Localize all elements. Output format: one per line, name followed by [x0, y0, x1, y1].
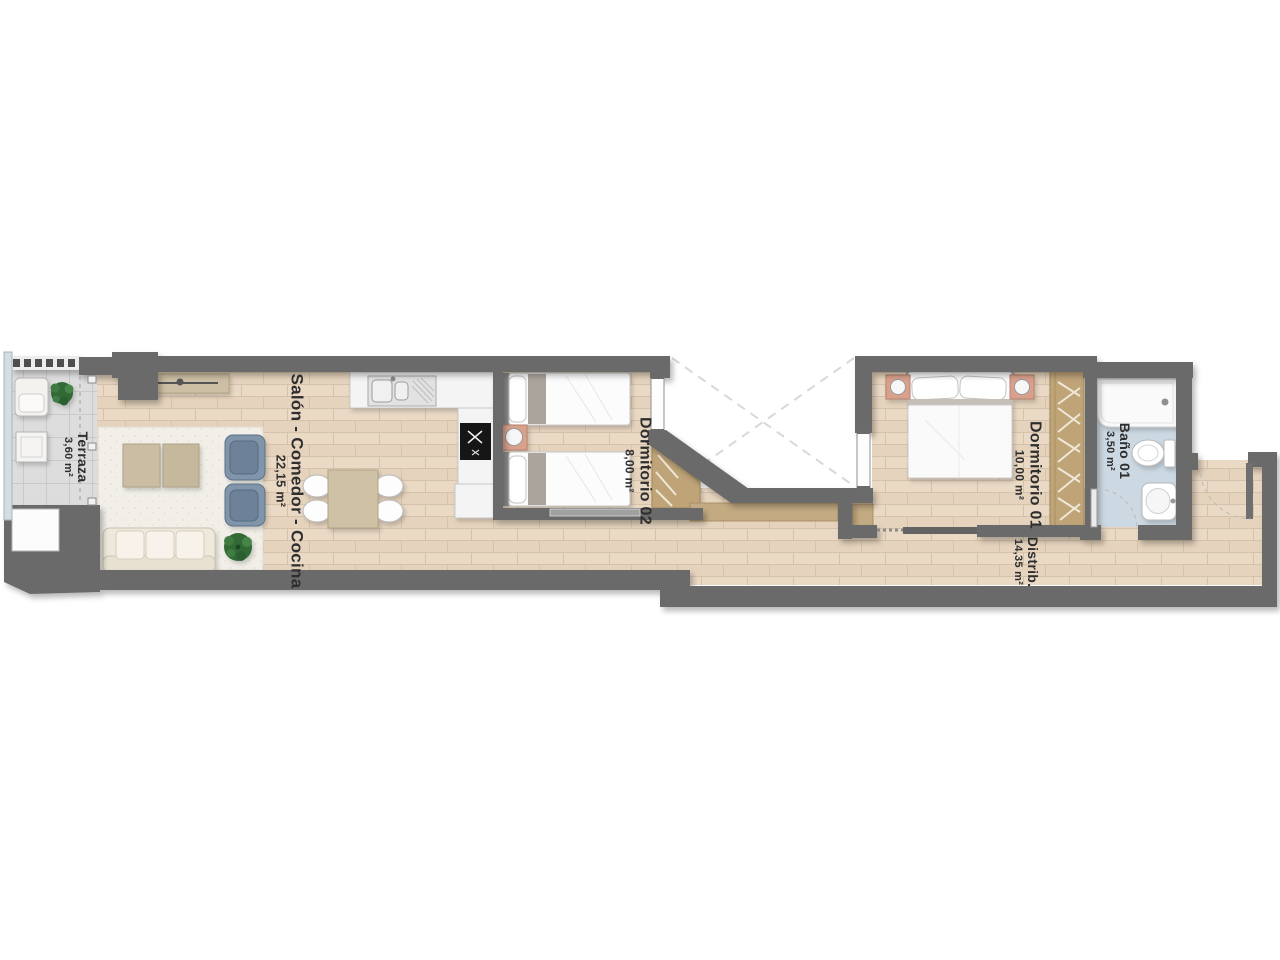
bed02b-blanket: [528, 453, 546, 505]
bed01-pillow-left: [911, 376, 958, 400]
hall-cabinet-strip: [690, 503, 838, 521]
terrace-wall-block: [79, 357, 112, 375]
shower-drain: [1162, 399, 1169, 406]
bedroom01-top-wall: [855, 356, 1097, 372]
bedroom01-wardrobe: [1050, 371, 1084, 527]
dining-chair: [375, 500, 403, 522]
sofa: [103, 528, 215, 572]
right-outer-wall: [1262, 458, 1277, 607]
bedroom01-bottom-wall-left: [852, 525, 877, 537]
bed01-pillow-right: [959, 376, 1006, 400]
floor-plan-page: Terraza 3,60 m² Salón - Comedor - Cocina…: [0, 0, 1280, 960]
bedroom02-lamp: [506, 429, 523, 446]
bedroom01-lamp-left: [891, 380, 906, 395]
dining-chair: [303, 475, 331, 497]
kitchen-bedroom02-wall: [493, 370, 503, 511]
lounge-chair-seat: [19, 394, 44, 412]
utility-box: [12, 509, 59, 551]
sofa-cushion: [146, 531, 174, 559]
dining-table: [328, 470, 378, 528]
armchair-1: [225, 435, 265, 480]
entrance-jamb-left: [1176, 453, 1198, 470]
floor-plan-drawing: [0, 0, 1280, 960]
bed02a-blanket: [528, 374, 546, 424]
bathroom-sink: [1142, 483, 1176, 520]
kitchen-appliance: [455, 484, 494, 518]
terrace-balustrade: [4, 352, 12, 520]
dining-chair: [375, 475, 403, 497]
bed02b-pillow: [509, 456, 526, 503]
bathroom-right-wall: [1176, 362, 1192, 533]
bedroom02-window: [651, 376, 664, 432]
ottoman-2: [163, 444, 199, 487]
bed02a-headboard: [503, 373, 509, 425]
bed02a-pillow: [509, 376, 526, 422]
single-bed-2: [509, 452, 630, 506]
armchair-2: [225, 484, 265, 526]
kitchen-sink: [368, 376, 436, 406]
bedroom01-bottom-wall-right: [977, 525, 1090, 537]
dining-chair: [303, 500, 331, 522]
sofa-cushion: [116, 531, 144, 559]
sofa-cushion: [176, 531, 204, 559]
bedroom01-lamp-right: [1015, 380, 1030, 395]
living-room-bottom-wall: [98, 570, 690, 590]
living-room-plant: [224, 533, 252, 561]
bathroom-bottom-wall-right: [1138, 525, 1192, 540]
bed01-duvet: [908, 405, 1012, 478]
bedroom01-window: [857, 431, 870, 489]
toilet: [1132, 440, 1175, 467]
ottoman-1: [123, 444, 160, 487]
bed02b-headboard: [503, 452, 509, 506]
top-wall: [155, 356, 668, 372]
tv-mount: [177, 379, 184, 386]
bedroom02-window-wall-top: [650, 356, 670, 378]
cooktop: [460, 423, 491, 460]
terrace-column: [112, 352, 158, 400]
hallway-bottom-wall: [660, 586, 1277, 607]
light-well-bottom-wall: [731, 488, 873, 503]
bedroom02-sliding-door: [550, 509, 640, 516]
